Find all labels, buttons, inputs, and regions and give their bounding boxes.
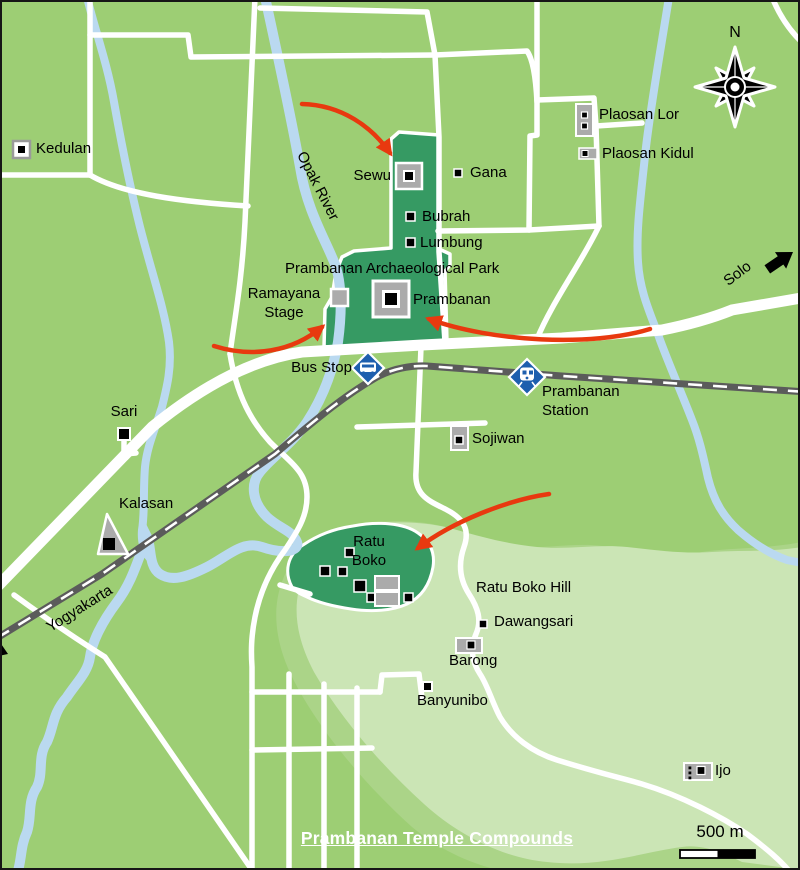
ramayana-stage-icon: [331, 289, 348, 306]
barong-label: Barong: [449, 652, 497, 671]
arrow-to-sewu: [302, 104, 390, 153]
road-kedulan-diagonal: [90, 175, 248, 206]
banyunibo-temple-icon: [423, 682, 432, 691]
road-plaosan-south: [438, 226, 599, 231]
road-station-connector: [537, 226, 599, 339]
ijo-temple-icon: [684, 763, 712, 780]
ijo-label: Ijo: [715, 762, 731, 781]
sojiwan-temple-icon: [451, 426, 468, 450]
lumbung-temple-icon: [406, 238, 415, 247]
road-north-to-plaosan: [435, 51, 537, 102]
prambanan-temple-icon: [373, 281, 409, 317]
bubrah-label: Bubrah: [422, 208, 470, 227]
scale-label: 500 m: [685, 821, 755, 842]
train-station-icon: [509, 359, 545, 395]
plaosan-lor-temple-icon: [576, 104, 593, 136]
gana-label: Gana: [470, 164, 507, 183]
dawangsari-temple-icon: [479, 620, 487, 628]
solo-arrow-icon: [762, 244, 799, 278]
prambanan-label: Prambanan: [413, 291, 491, 310]
prambanan-map: Kedulan Plaosan Lor Plaosan Kidul Sewu G…: [0, 0, 800, 870]
compass-rose-icon: [695, 47, 775, 127]
compass-north-label: N: [722, 23, 748, 43]
kalasan-label: Kalasan: [119, 495, 173, 514]
gana-temple-icon: [454, 169, 462, 177]
kedulan-temple-icon: [13, 141, 30, 158]
map-canvas: [2, 2, 800, 870]
lumbung-label: Lumbung: [420, 234, 483, 253]
kalasan-temple-icon: [98, 514, 128, 554]
road-north-step: [90, 35, 435, 57]
kedulan-label: Kedulan: [36, 140, 91, 159]
road-northeast-corner: [772, 2, 800, 47]
park-label: Prambanan Archaeological Park: [285, 260, 499, 279]
station-label: Prambanan Station: [542, 383, 657, 421]
ratu-boko-hill-label: Ratu Boko Hill: [476, 579, 571, 598]
sojiwan-label: Sojiwan: [472, 430, 525, 449]
banyunibo-label: Banyunibo: [417, 692, 488, 711]
sewu-temple-icon: [396, 163, 422, 189]
plaosan-kidul-label: Plaosan Kidul: [602, 145, 694, 164]
sari-label: Sari: [104, 403, 144, 422]
plaosan-kidul-temple-icon: [579, 148, 597, 159]
sari-temple-icon: [118, 428, 130, 440]
road-top-edge: [260, 8, 435, 55]
dawangsari-label: Dawangsari: [494, 613, 573, 632]
bus-stop-label: Bus Stop: [282, 359, 352, 378]
road-grid-h2: [252, 748, 372, 750]
ramayana-stage-label: Ramayana Stage: [239, 285, 329, 323]
sewu-label: Sewu: [321, 167, 391, 186]
road-plaosan-east-vertical: [596, 126, 599, 226]
bubrah-temple-icon: [406, 212, 415, 221]
scale-bar: [680, 850, 755, 858]
map-title: Prambanan Temple Compounds: [272, 828, 602, 850]
plaosan-lor-label: Plaosan Lor: [599, 106, 679, 125]
ratu-boko-label: Ratu Boko: [341, 533, 397, 571]
road-plaosan-vertical: [529, 2, 537, 230]
barong-temple-icon: [456, 638, 482, 653]
